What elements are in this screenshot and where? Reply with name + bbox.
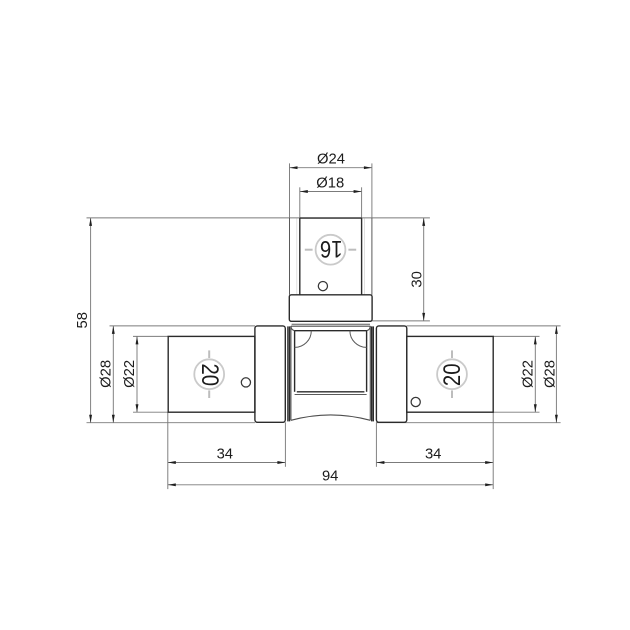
svg-text:Ø22: Ø22 xyxy=(520,360,536,388)
svg-text:30: 30 xyxy=(410,271,426,287)
svg-text:34: 34 xyxy=(217,446,233,462)
svg-text:16: 16 xyxy=(320,235,343,262)
svg-text:20: 20 xyxy=(196,363,223,386)
svg-text:58: 58 xyxy=(75,312,91,328)
svg-text:Ø28: Ø28 xyxy=(98,360,114,388)
svg-text:34: 34 xyxy=(425,446,441,462)
svg-text:Ø24: Ø24 xyxy=(317,152,345,168)
svg-text:Ø28: Ø28 xyxy=(543,360,559,388)
svg-text:20: 20 xyxy=(438,363,465,386)
svg-text:Ø18: Ø18 xyxy=(316,175,344,191)
svg-text:Ø22: Ø22 xyxy=(122,360,138,388)
svg-text:94: 94 xyxy=(322,469,338,485)
